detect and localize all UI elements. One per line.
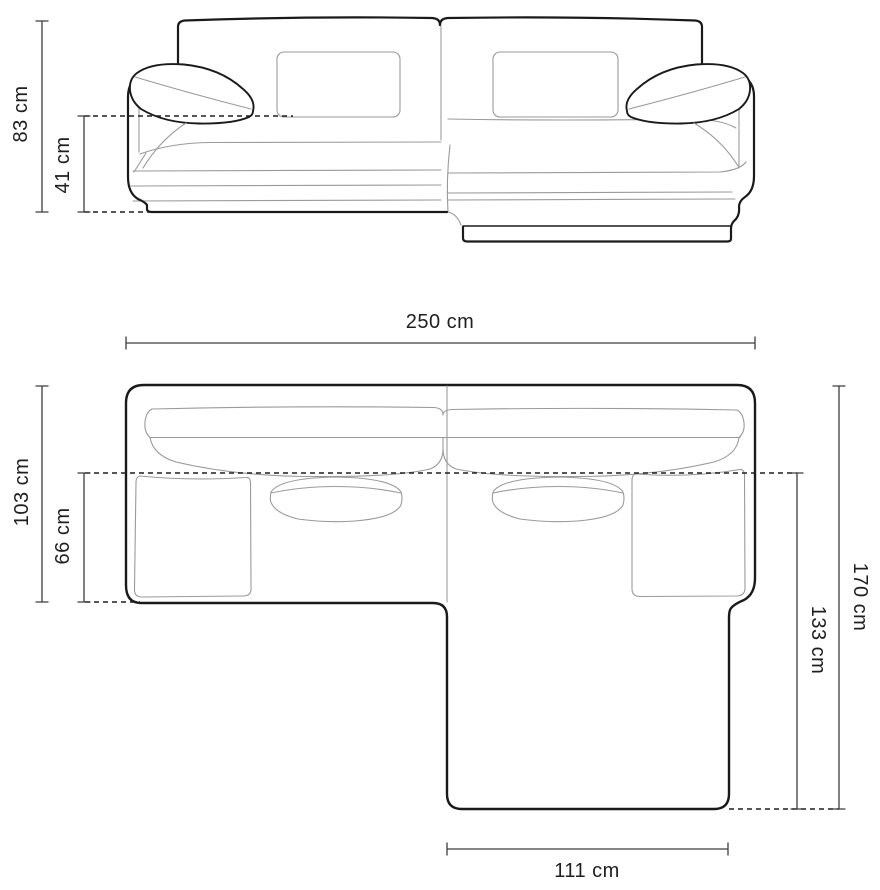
front-back-cushion-right [493, 52, 618, 117]
plan-chaise-extension-dim-line [791, 473, 804, 809]
plan-lumbar-pillow-left [270, 477, 402, 522]
front-back-cushion-left [277, 52, 400, 117]
diagram-canvas [0, 0, 880, 890]
plan-total-depth-label: 103 cm [12, 458, 32, 527]
front-seat-height-dim-line [78, 116, 91, 212]
top-plan-view [126, 385, 755, 809]
plan-total-width-dim-line [126, 337, 755, 350]
plan-total-width-label: 250 cm [406, 312, 475, 332]
plan-chaise-total-depth-label: 170 cm [850, 563, 870, 632]
front-total-height-label: 83 cm [11, 86, 31, 143]
plan-armrest-cushion-right [632, 469, 745, 596]
front-seat-height-label: 41 cm [53, 137, 73, 194]
front-pillow-right-arm-curve [694, 123, 738, 166]
plan-armrest-cushion-left [134, 476, 251, 597]
plan-chaise-extension-label: 133 cm [808, 606, 828, 675]
sofa-dimensions-diagram: 83 cm 41 cm 250 cm 103 cm 66 cm 170 cm 1… [0, 0, 880, 890]
plan-body-outline [126, 385, 755, 809]
front-elevation-view [128, 17, 754, 241]
plan-seat-depth-dim-line [78, 473, 91, 602]
front-total-height-dim-line [36, 21, 49, 212]
plan-total-depth-dim-line [36, 386, 49, 602]
front-pillow-left-arm-curve [143, 123, 186, 168]
plan-chaise-total-dim-line [833, 386, 846, 809]
plan-chaise-width-label: 111 cm [554, 861, 620, 881]
plan-seat-depth-label: 66 cm [53, 508, 73, 565]
plan-chaise-width-dim-line [447, 843, 728, 856]
plan-lumbar-pillow-right [492, 477, 624, 522]
